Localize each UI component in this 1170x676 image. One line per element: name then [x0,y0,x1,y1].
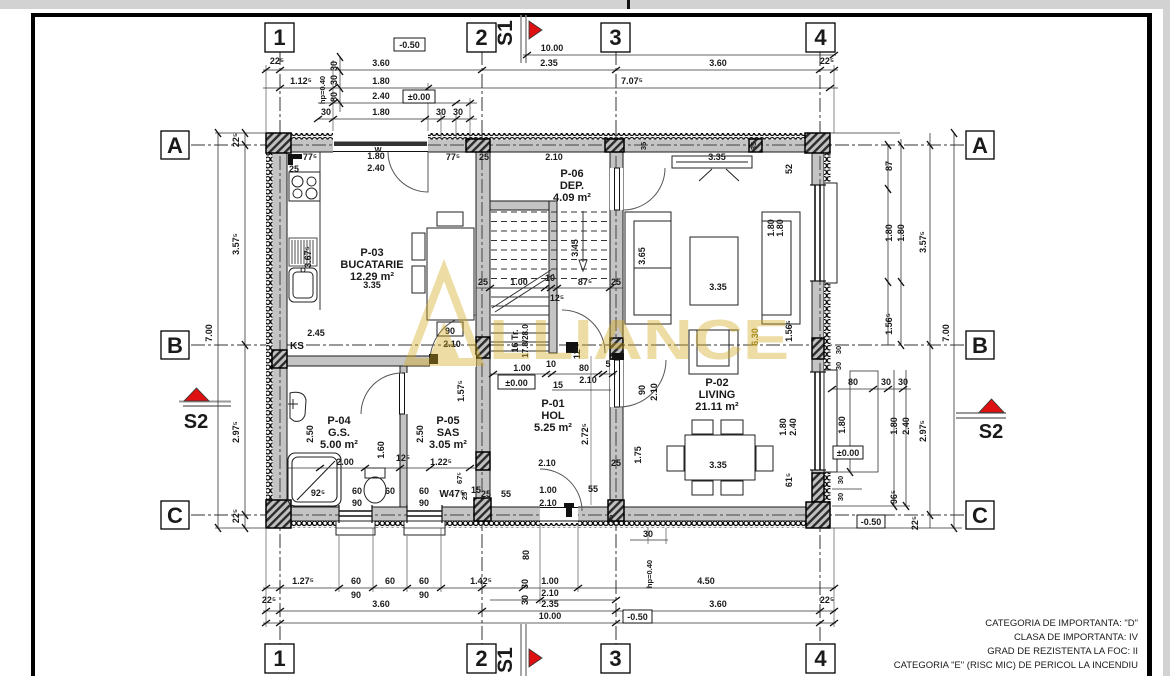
svg-text:22⁵: 22⁵ [270,56,284,66]
svg-text:1.42⁵: 1.42⁵ [470,576,492,586]
svg-text:1.00: 1.00 [539,485,557,495]
svg-text:1.75: 1.75 [633,446,643,464]
svg-text:4: 4 [814,646,827,671]
svg-text:30: 30 [321,107,331,117]
svg-text:22⁵: 22⁵ [262,595,276,605]
svg-text:±0.00: ±0.00 [837,448,859,458]
svg-text:22⁵: 22⁵ [910,516,920,530]
svg-text:96⁵: 96⁵ [889,490,899,504]
svg-text:1.80: 1.80 [778,418,788,436]
svg-text:B: B [167,333,183,358]
svg-text:35: 35 [639,142,648,150]
svg-text:1.80: 1.80 [775,219,785,237]
svg-text:2.10: 2.10 [541,588,559,598]
svg-text:25: 25 [289,164,299,174]
svg-text:30: 30 [881,377,891,387]
svg-text:A: A [167,133,183,158]
svg-text:2.10: 2.10 [538,458,556,468]
svg-text:1.80: 1.80 [367,151,385,161]
svg-text:55: 55 [501,489,511,499]
svg-text:30: 30 [898,377,908,387]
svg-text:3.57⁵: 3.57⁵ [918,231,928,253]
svg-text:30: 30 [834,362,843,370]
svg-text:1.60: 1.60 [376,441,386,459]
svg-text:25: 25 [478,277,488,287]
svg-text:1.80: 1.80 [889,417,899,435]
svg-text:87: 87 [884,161,894,171]
svg-text:3.60: 3.60 [372,58,390,68]
svg-text:2.72⁵: 2.72⁵ [580,423,590,445]
svg-text:30: 30 [836,493,845,501]
svg-text:3.67⁵: 3.67⁵ [303,246,313,268]
svg-text:3.60: 3.60 [372,599,390,609]
svg-text:S2: S2 [979,421,1003,443]
svg-text:10.00: 10.00 [539,611,562,621]
svg-text:A: A [972,133,988,158]
svg-text:1.27⁵: 1.27⁵ [292,576,314,586]
svg-text:KS: KS [290,341,304,352]
svg-text:4.50: 4.50 [697,576,715,586]
svg-text:GRAD DE REZISTENTA LA FOC: II: GRAD DE REZISTENTA LA FOC: II [987,646,1138,657]
svg-text:HOL: HOL [541,410,565,422]
svg-text:S1: S1 [494,20,517,46]
svg-text:CATEGORIA "E" (RISC MIC) DE PE: CATEGORIA "E" (RISC MIC) DE PERICOL LA I… [894,660,1138,671]
svg-text:77⁵: 77⁵ [446,152,460,162]
svg-text:92⁵: 92⁵ [311,488,325,498]
svg-text:4: 4 [814,25,827,50]
svg-text:35: 35 [606,515,615,523]
svg-text:1.80: 1.80 [884,224,894,242]
svg-text:30: 30 [520,579,530,589]
svg-text:1.80: 1.80 [372,107,390,117]
svg-text:-0.50: -0.50 [399,40,420,50]
svg-text:5.00 m²: 5.00 m² [320,439,358,451]
svg-text:7.07⁵: 7.07⁵ [621,76,643,86]
svg-text:15: 15 [471,485,481,495]
svg-text:1.80: 1.80 [372,76,390,86]
svg-text:2.40: 2.40 [372,91,390,101]
svg-text:67⁵: 67⁵ [455,472,464,484]
svg-text:3.60: 3.60 [709,58,727,68]
svg-text:60: 60 [351,576,361,586]
svg-text:80: 80 [329,92,339,102]
svg-text:1.12⁵: 1.12⁵ [290,76,312,86]
svg-text:87⁵: 87⁵ [578,277,592,287]
svg-text:3: 3 [609,25,621,50]
svg-text:S2: S2 [184,411,208,433]
svg-text:30: 30 [834,346,843,354]
svg-text:BUCATARIE: BUCATARIE [340,259,403,271]
svg-text:60: 60 [385,576,395,586]
svg-text:77⁵: 77⁵ [303,152,317,162]
svg-text:15: 15 [553,380,563,390]
svg-text:90: 90 [352,498,362,508]
svg-text:2.45: 2.45 [307,328,325,338]
svg-text:12⁵: 12⁵ [550,293,564,303]
svg-text:12⁵: 12⁵ [396,453,410,463]
svg-text:S1: S1 [494,647,517,673]
svg-text:1.56⁵: 1.56⁵ [884,313,894,335]
svg-text:CLASA DE IMPORTANTA: IV: CLASA DE IMPORTANTA: IV [1014,632,1139,643]
svg-text:2.40: 2.40 [367,163,385,173]
svg-text:30: 30 [836,476,845,484]
svg-text:2: 2 [475,646,487,671]
svg-text:60: 60 [352,486,362,496]
svg-text:1.80: 1.80 [837,416,847,434]
svg-text:3.35: 3.35 [709,460,727,470]
svg-text:2.35: 2.35 [541,599,559,609]
svg-text:21.11 m²: 21.11 m² [695,401,739,413]
svg-text:3.65: 3.65 [637,247,647,265]
svg-text:3.35: 3.35 [708,152,726,162]
svg-text:52: 52 [784,164,794,174]
svg-text:3.35: 3.35 [709,282,727,292]
svg-text:hp=0.40: hp=0.40 [318,76,327,104]
svg-text:22⁵: 22⁵ [820,595,834,605]
svg-text:90: 90 [351,590,361,600]
svg-text:-0.50: -0.50 [861,517,882,527]
svg-text:P-02: P-02 [705,377,728,389]
svg-text:3.05 m²: 3.05 m² [429,439,467,451]
svg-text:3.35: 3.35 [363,280,381,290]
svg-text:2.10: 2.10 [539,498,557,508]
svg-text:3.60: 3.60 [709,599,727,609]
svg-text:30: 30 [436,107,446,117]
svg-text:1: 1 [273,646,285,671]
svg-text:P-06: P-06 [560,168,583,180]
svg-text:-0.50: -0.50 [627,612,648,622]
svg-text:10.00: 10.00 [541,43,564,53]
svg-text:60: 60 [419,576,429,586]
svg-text:30: 30 [520,595,530,605]
svg-text:7.00: 7.00 [204,324,214,342]
svg-text:1: 1 [273,25,285,50]
svg-text:35: 35 [749,142,758,150]
svg-text:22⁵: 22⁵ [820,56,834,66]
svg-text:3: 3 [609,646,621,671]
svg-text:22⁵: 22⁵ [231,133,241,147]
svg-text:25: 25 [481,489,491,499]
svg-text:55: 55 [588,484,598,494]
svg-text:5.25 m²: 5.25 m² [534,422,572,434]
svg-text:SAS: SAS [437,427,460,439]
svg-text:90: 90 [419,498,429,508]
svg-text:DEP.: DEP. [560,180,584,192]
svg-text:2.97⁵: 2.97⁵ [231,421,241,443]
svg-text:C: C [167,503,183,528]
svg-text:P-01: P-01 [541,398,564,410]
svg-text:2.50: 2.50 [415,425,425,443]
svg-text:80: 80 [848,377,858,387]
svg-text:4.09 m²: 4.09 m² [553,192,591,204]
svg-text:1.00: 1.00 [510,277,528,287]
svg-text:60: 60 [419,486,429,496]
svg-text:C: C [972,503,988,528]
svg-text:2.10: 2.10 [649,383,659,401]
svg-text:10: 10 [545,273,555,283]
svg-text:2.97⁵: 2.97⁵ [918,420,928,442]
svg-text:22⁵: 22⁵ [231,509,241,523]
svg-text:61⁵: 61⁵ [784,473,794,487]
svg-text:P-03: P-03 [360,247,383,259]
svg-text:7.00: 7.00 [941,324,951,342]
svg-text:±0.00: ±0.00 [408,92,430,102]
svg-text:P-04: P-04 [327,415,351,427]
svg-text:2: 2 [475,25,487,50]
svg-text:30: 30 [329,75,339,85]
svg-text:25: 25 [611,458,621,468]
svg-text:90: 90 [637,385,647,395]
svg-text:±0.00: ±0.00 [505,378,527,388]
svg-text:30: 30 [329,61,339,71]
svg-text:2.10: 2.10 [545,152,563,162]
svg-text:25: 25 [479,152,489,162]
svg-text:3.45: 3.45 [570,239,580,257]
svg-text:B: B [972,333,988,358]
svg-text:1.80: 1.80 [896,224,906,242]
svg-text:P-05: P-05 [436,415,459,427]
svg-text:80: 80 [521,550,531,560]
svg-text:LIVING: LIVING [699,389,736,401]
svg-text:90: 90 [419,590,429,600]
svg-text:1.00: 1.00 [541,576,559,586]
svg-text:60: 60 [385,486,395,496]
svg-text:LLIANCE: LLIANCE [489,308,789,372]
svg-text:2.40: 2.40 [788,418,798,436]
svg-text:hp=0.40: hp=0.40 [645,560,654,588]
svg-text:2.00: 2.00 [336,457,354,467]
svg-text:30: 30 [453,107,463,117]
svg-text:3.57⁵: 3.57⁵ [231,233,241,255]
svg-text:CATEGORIA DE IMPORTANTA: "D": CATEGORIA DE IMPORTANTA: "D" [985,618,1138,629]
svg-text:1.57⁵: 1.57⁵ [456,380,466,402]
svg-text:2.50: 2.50 [305,425,315,443]
svg-text:30: 30 [643,529,653,539]
svg-text:G.S.: G.S. [328,427,350,439]
svg-text:25: 25 [460,492,469,500]
svg-text:2.35: 2.35 [540,58,558,68]
svg-text:2.40: 2.40 [901,417,911,435]
